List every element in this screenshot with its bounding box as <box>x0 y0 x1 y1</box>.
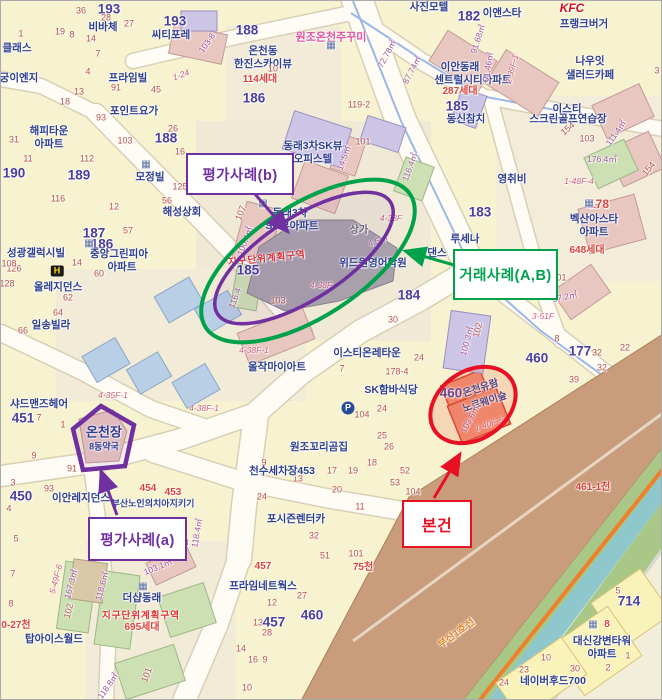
subject-arrow <box>434 454 460 498</box>
eval-case-a-label: 평가사례(a) <box>88 517 187 561</box>
subject-label: 본건 <box>402 500 472 548</box>
eval-case-a-arrow <box>101 471 117 515</box>
trade-cases-label: 거래사례(A,B) <box>453 249 558 300</box>
subject-ellipse <box>416 351 530 459</box>
trade-cases-arrow <box>405 251 454 265</box>
eval-case-b-label: 평가사례(b) <box>186 153 294 195</box>
eval-case-a-polygon <box>73 406 134 470</box>
map-canvas[interactable]: 193362827비바체193씨티포레198141클래스7궁이엔지4프라임빌91… <box>0 0 662 700</box>
annotation-layer <box>1 1 662 700</box>
